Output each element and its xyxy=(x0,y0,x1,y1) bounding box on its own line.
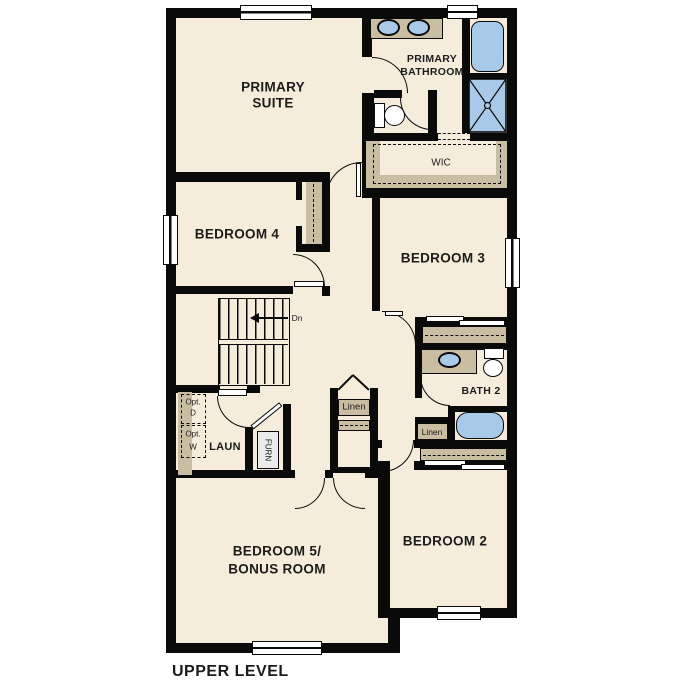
bedroom3-closet-door-2 xyxy=(459,320,505,326)
room-label-primary-suite-2: SUITE xyxy=(252,96,293,111)
room-label-bedroom5-1: BEDROOM 5/ xyxy=(233,544,322,559)
label-stairs-dn: Dn xyxy=(292,313,303,323)
window-bedroom4-left xyxy=(163,215,178,265)
floor-plan: PRIMARY SUITE PRIMARY BATHROOM WIC BEDRO… xyxy=(0,0,687,687)
primary-tub-icon xyxy=(471,21,504,72)
staircase xyxy=(218,298,290,386)
wall-linen-left xyxy=(330,388,338,473)
wall-laun-furn xyxy=(245,427,253,473)
door-leaf-laundry xyxy=(218,389,247,396)
wall-hall-corner xyxy=(322,286,330,296)
label-opt-dryer-1: Opt. xyxy=(185,398,200,407)
window-bedroom5-bottom xyxy=(252,641,322,655)
wall-wic-top-left xyxy=(374,133,438,141)
room-label-bedroom3: BEDROOM 3 xyxy=(401,251,485,266)
window-primary-bath-top xyxy=(447,5,478,19)
label-linen-bath: Linen xyxy=(422,427,443,437)
wall-stairs-bottom-stub xyxy=(247,385,260,393)
wall-outer-right xyxy=(507,8,517,618)
bath2-sink-icon xyxy=(438,352,461,368)
wall-outer-left xyxy=(166,8,176,653)
room-label-primary-bathroom-1: PRIMARY xyxy=(407,53,457,65)
primary-sink-icon-2 xyxy=(407,19,430,36)
shower-icon xyxy=(468,78,507,133)
room-label-primary-suite-1: PRIMARY xyxy=(241,80,305,95)
wall-linen-bottom xyxy=(330,467,378,473)
bedroom2-closet-rod xyxy=(423,455,504,456)
dn-arrow-head xyxy=(250,313,259,323)
bedroom4-closet-rod xyxy=(313,184,314,242)
wall-bath2-bottom-stub xyxy=(372,440,382,448)
room-label-bath2: BATH 2 xyxy=(462,385,501,397)
door-leaf-primary-suite xyxy=(356,163,361,197)
bath2-toilet-bowl-icon xyxy=(483,359,503,377)
wall-bed4closet-stub1 xyxy=(296,182,302,200)
bedroom4-closet-shelf xyxy=(306,182,322,244)
wall-bed4closet-stub2 xyxy=(296,226,302,244)
label-opt-dryer-2: D xyxy=(190,409,196,418)
dn-arrow-shaft xyxy=(258,317,288,319)
label-linen-hall: Linen xyxy=(342,402,365,413)
wic-opening-dashed xyxy=(438,133,470,134)
room-label-bedroom5-2: BONUS ROOM xyxy=(228,562,326,577)
wall-bath2-bottom xyxy=(414,440,517,448)
wall-wic-bottom xyxy=(362,188,517,198)
wall-bed3closet-weststub xyxy=(415,326,422,344)
bath2-tub-icon xyxy=(456,412,504,439)
wall-furn-right xyxy=(283,404,291,473)
wall-linen-right xyxy=(370,388,378,473)
wall-bedroom4-bottom xyxy=(176,286,293,294)
wall-bed4closet-bottom xyxy=(296,244,330,252)
wall-primary-bedroom4 xyxy=(176,172,330,182)
room-label-laundry: LAUN xyxy=(209,441,241,453)
wall-wic-top-right xyxy=(470,133,507,141)
bedroom2-closet-door-2 xyxy=(461,464,505,470)
room-label-bedroom2: BEDROOM 2 xyxy=(403,534,487,549)
door-leaf-bath2-entry xyxy=(385,311,403,316)
plan-title: UPPER LEVEL xyxy=(172,663,289,681)
linen-hall-rod xyxy=(340,425,368,426)
bedroom2-closet-door-1 xyxy=(424,460,466,466)
room-label-bedroom4: BEDROOM 4 xyxy=(195,227,279,242)
wall-bedroom5-top-a xyxy=(176,470,295,478)
primary-sink-icon-1 xyxy=(377,19,400,36)
label-opt-washer-2: W xyxy=(189,443,197,452)
room-label-primary-bathroom-2: BATHROOM xyxy=(400,66,463,78)
window-primary-suite-top xyxy=(240,5,312,20)
door-leaf-bedroom4 xyxy=(294,281,324,287)
wall-bedroom3-west xyxy=(372,198,380,311)
bedroom3-closet-rod xyxy=(425,335,504,336)
label-furnace: FURN xyxy=(264,439,273,461)
room-label-wic: WIC xyxy=(431,158,450,169)
window-bedroom3-right xyxy=(505,238,520,288)
bath2-toilet-tank-icon xyxy=(484,348,504,359)
wic-opening-dashed2 xyxy=(438,139,470,140)
label-opt-washer-1: Opt. xyxy=(185,430,200,439)
window-bedroom2-bottom xyxy=(437,606,481,620)
stair-treads-lower xyxy=(219,345,288,384)
wall-bedroom5-east xyxy=(378,461,390,610)
